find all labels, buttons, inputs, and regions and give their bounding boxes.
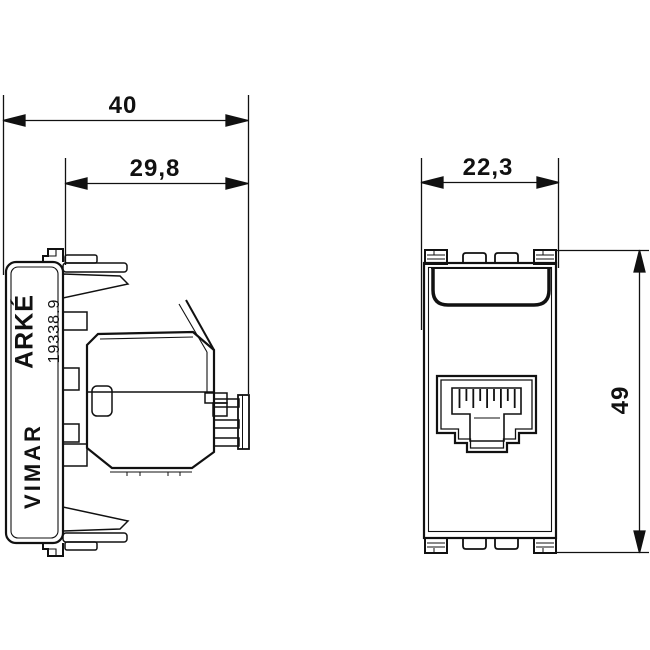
dim-label-module-width: 22,3 [438,154,538,182]
marking-brand-vimar: VIMAR [20,421,46,511]
marking-part-number: 19338.9 [46,286,64,376]
marking-series-arke: ARKÉ [11,287,40,377]
front-view [424,250,556,553]
dim-label-total-depth: 40 [83,92,163,120]
dim-label-module-height: 49 [607,370,635,430]
dimension-lines [3,95,649,553]
technical-drawing-page: 40 29,8 22,3 49 ARKÉ 19338.9 VIMAR [0,0,650,650]
dim-label-mounting-depth: 29,8 [105,155,205,183]
